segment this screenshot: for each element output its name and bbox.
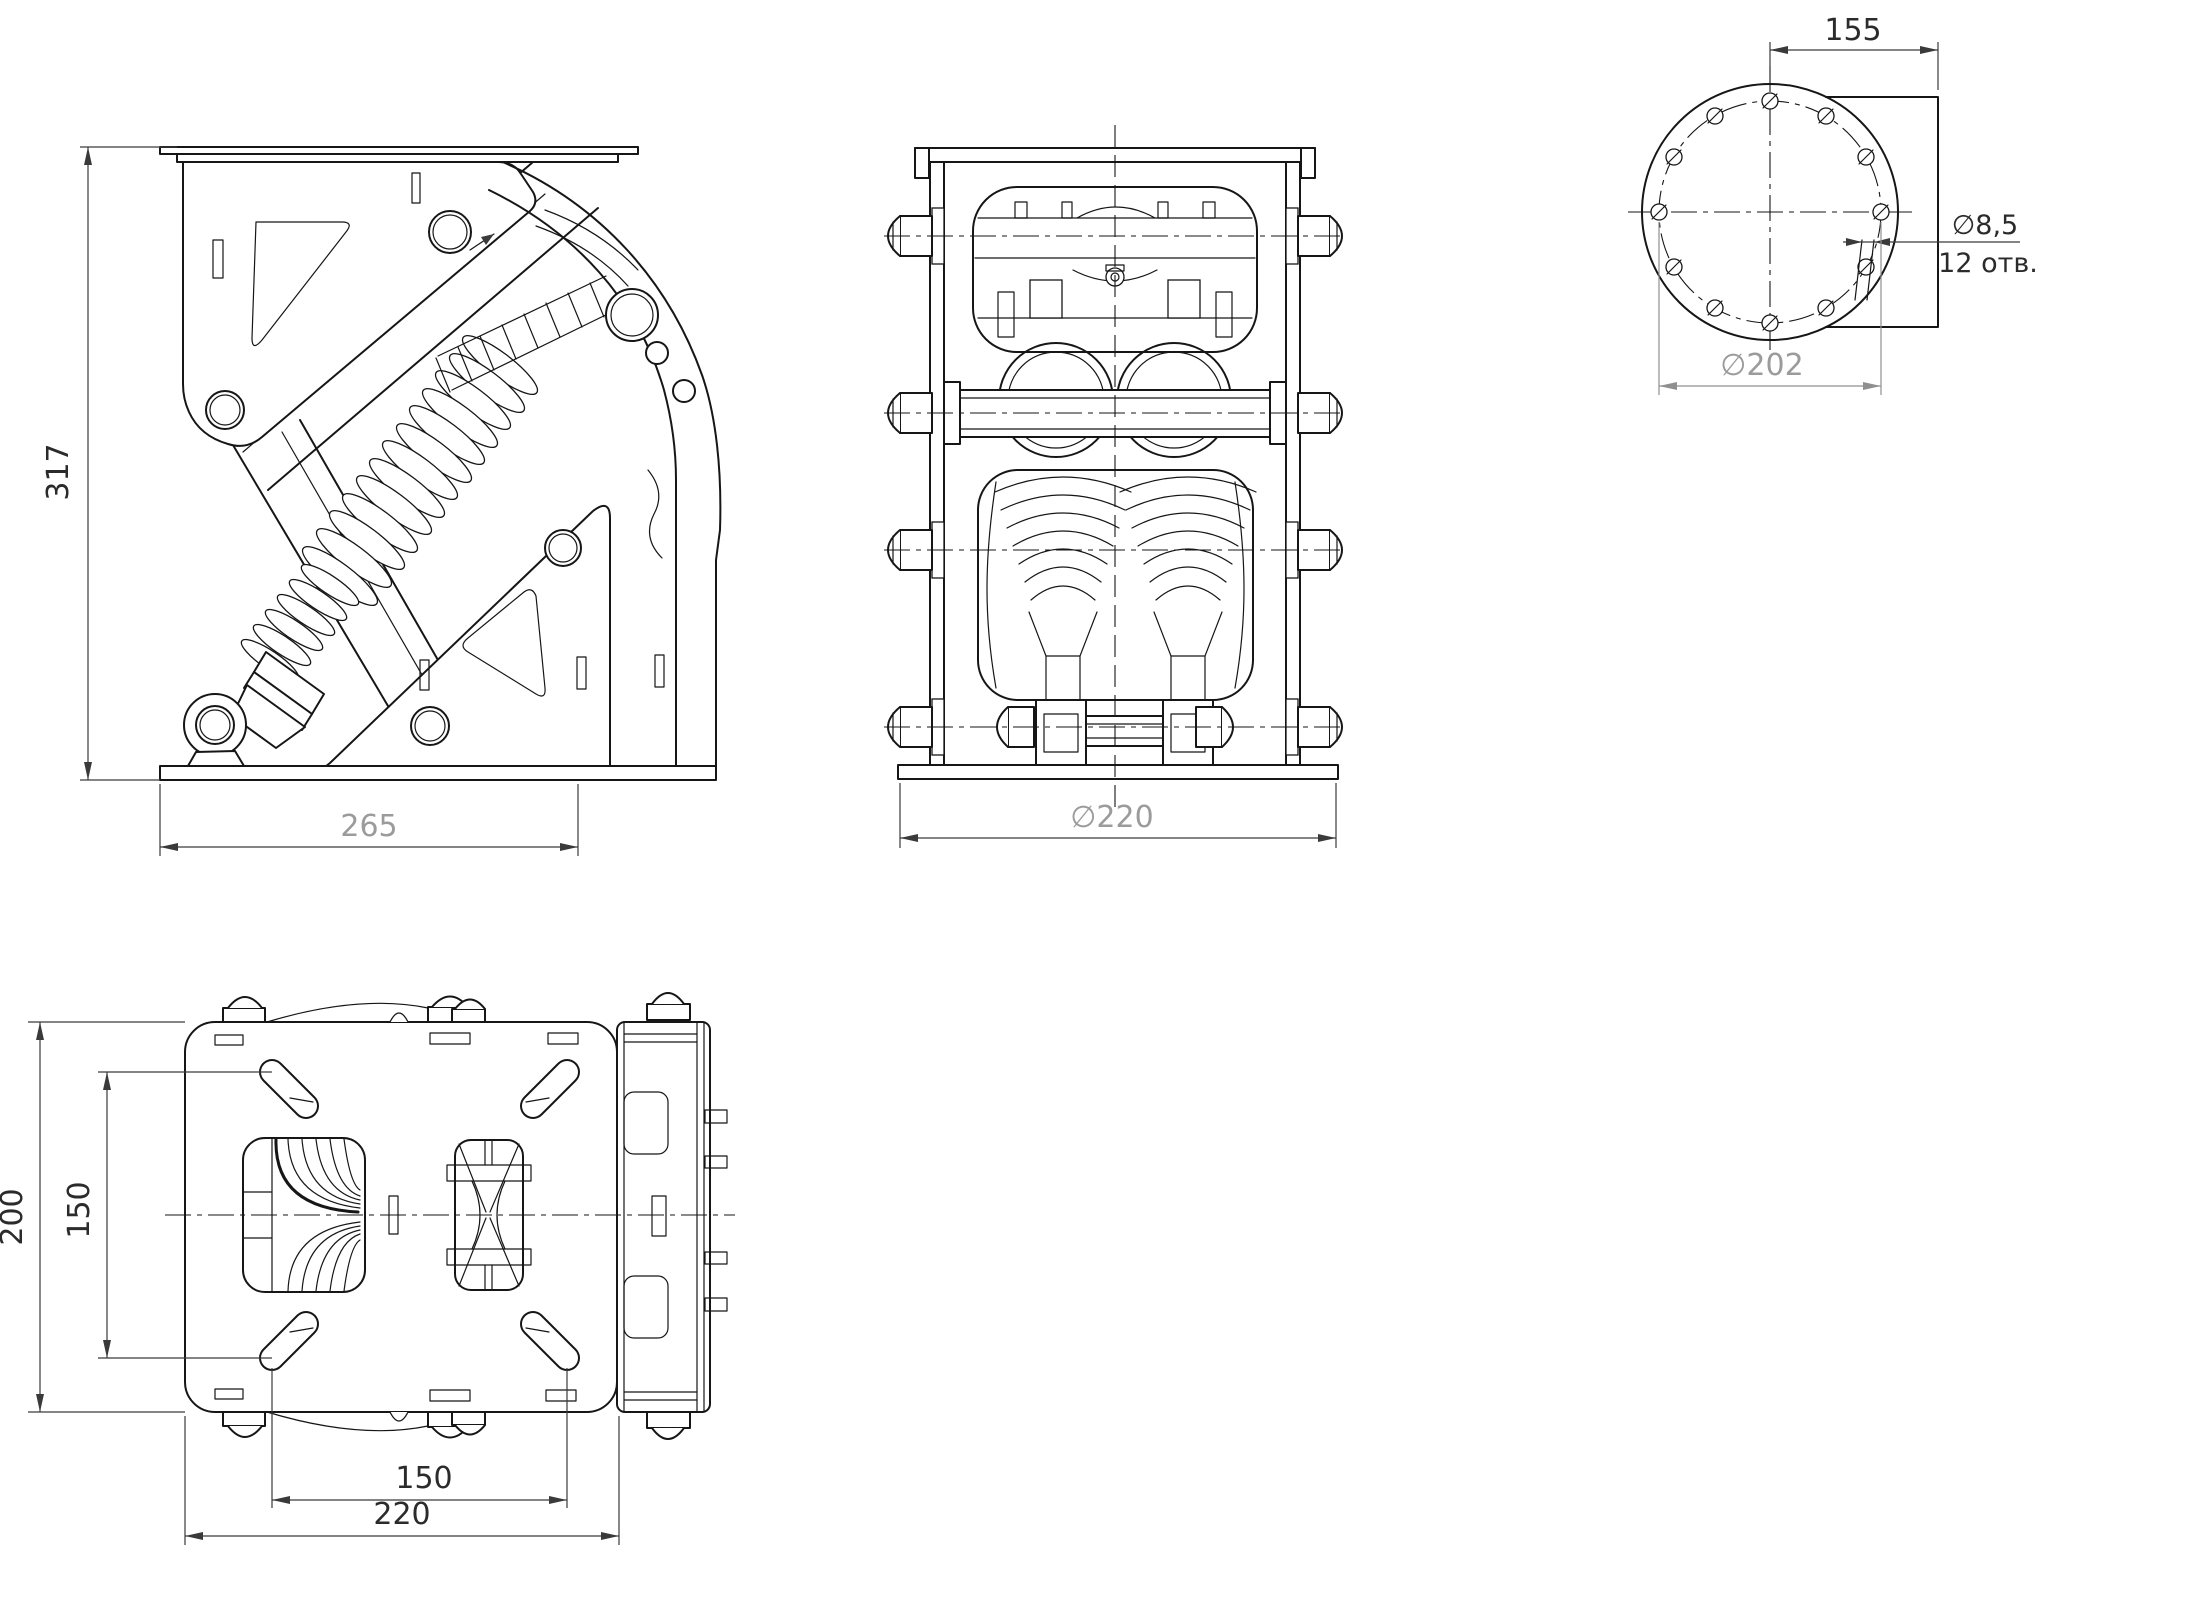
dim-label-d202: ∅202 — [1720, 348, 1803, 383]
dim-label-155: 155 — [1824, 13, 1881, 48]
dim-inner-150-h: 150 — [272, 1368, 567, 1508]
dim-label-265: 265 — [340, 809, 397, 844]
plan-view: 200 150 150 220 — [0, 993, 735, 1545]
dim-diameter-220: ∅220 — [900, 783, 1336, 848]
side-view: 317 265 — [41, 147, 720, 856]
base-plate — [160, 766, 716, 780]
hole-callout: ∅8,5 12 отв. — [1843, 210, 2038, 300]
drawing-sheet: 317 265 — [0, 0, 2204, 1622]
dim-label-150v: 150 — [62, 1181, 97, 1238]
top-plate — [160, 147, 638, 154]
dim-label-220: 220 — [373, 1497, 430, 1532]
center-lug — [411, 707, 449, 745]
dim-label-317: 317 — [41, 443, 76, 500]
dim-label-150h: 150 — [395, 1461, 452, 1496]
front-view: ∅220 — [884, 125, 1346, 848]
technical-drawing: 317 265 — [0, 0, 2204, 1622]
damper — [232, 559, 363, 748]
dim-label-d220: ∅220 — [1070, 800, 1153, 835]
front-base-plate — [898, 765, 1338, 779]
dim-offset-155: 155 — [1770, 13, 1938, 90]
dim-label-200: 200 — [0, 1188, 30, 1245]
dim-height-317: 317 — [41, 147, 177, 780]
dim-base-265: 265 — [160, 784, 578, 856]
dim-label-hole-count: 12 отв. — [1938, 248, 2038, 279]
plan-bottom-edge — [223, 1412, 485, 1438]
dim-label-hole-dia: ∅8,5 — [1952, 210, 2018, 241]
plan-side-extension — [617, 993, 727, 1439]
plan-top-edge — [223, 997, 485, 1023]
lower-window — [978, 470, 1256, 700]
eye-lug — [184, 694, 246, 766]
flange-view: 155 ∅8,5 12 отв. ∅202 — [1628, 13, 2038, 395]
